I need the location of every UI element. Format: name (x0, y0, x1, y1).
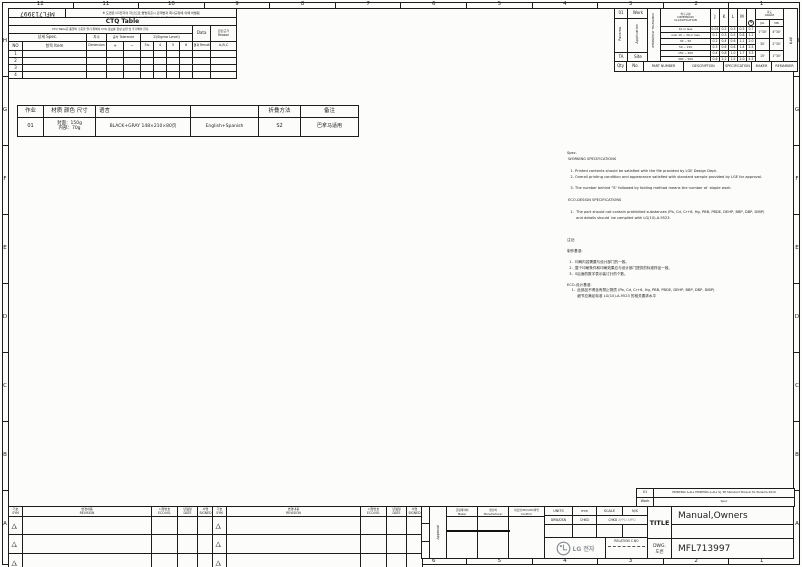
chinese-notes: 注记:制作基准: 1. 印刷内容需要与设计部门的一致。 2. 整个印刷条件和印刷… (567, 238, 799, 300)
revision-triangle-icon: △2 (216, 542, 224, 549)
drw-dsn-label: DRW/DSN (545, 516, 573, 524)
spec-material: 封面：150g 内部：70g (44, 118, 96, 137)
title-empty-row (672, 525, 793, 539)
circled-n-header: N (747, 9, 756, 27)
revision-symbol-cell: △2 (9, 535, 23, 553)
approval-label: Approval (436, 525, 440, 540)
revision-symbol-cell: △1 (9, 517, 23, 535)
dwg-number: MFL713997 (672, 539, 793, 558)
ruler-number: 4 (533, 559, 599, 565)
print-spec-table: 作业 材质 颜色 尺寸 语言 折叠方法 备注 01 封面：150g 内部：70g… (17, 105, 359, 137)
manufacturer-header: 생산처 Manufacturer (478, 507, 509, 516)
spec-remark: 巴拿马适用 (301, 118, 359, 137)
rev-work: Work (637, 498, 654, 507)
chkd-label: CHKD (573, 516, 597, 524)
angle-header: 각도 ANGLE (756, 9, 784, 20)
units-scale-block: UNITS mm SCALE N/S DRW/DSN CHKD CHKD APP… (544, 506, 648, 559)
revision-table-2: 기호 SYM 변경내용 REVISION 시행번호 ECO.NO. 년월일 DA… (212, 506, 423, 567)
approval-strip: Approval (421, 506, 447, 559)
title-label: TITLE (648, 507, 671, 539)
spec-language: English+Spanish (191, 118, 259, 137)
revision-summary-row: 01 PRINTING A-ALL PRINTING A-ALL SJ, SE … (636, 488, 795, 507)
revision-table-1: 기호 SYM 변경내용 REVISION 시행번호 ECO.NO. 년월일 DA… (8, 506, 214, 567)
rotated-drawing-number: MFL713997 (9, 9, 66, 17)
spec-folding: S2 (259, 118, 301, 137)
revision-symbol-cell: △3 (9, 553, 23, 567)
confirm-header: 자료실(3D)(2D)확인 Confirm (509, 507, 544, 516)
rev-spec: Spec (654, 498, 795, 507)
ruler-letter: G (794, 77, 800, 146)
note-line: 细节应满足标准 LG(10)-A-9523 的相关要求水平 (567, 294, 799, 300)
approval-sub-cells (422, 507, 430, 558)
chkd-appd-labels: CHKD APPD APPD (597, 516, 647, 524)
revision-symbol-cell: △2 (213, 535, 227, 553)
scale-label: SCALE (597, 507, 623, 515)
grade-header: 등급 (784, 9, 798, 69)
revision-triangle-icon: △3 (216, 561, 224, 567)
rev-desc: PRINTING A-ALL PRINTING A-ALL SJ, SE Sta… (654, 489, 795, 498)
revision-triangle-icon: △2 (12, 542, 20, 549)
spec-no: 01 (18, 118, 44, 137)
units-label: UNITS (545, 507, 573, 515)
title-value-column: Manual,Owners MFL713997 (671, 506, 794, 559)
ruler-number: 5 (467, 559, 533, 565)
ruler-number: 2 (664, 559, 730, 565)
ctq-data-header: Data (193, 26, 211, 42)
revision-triangle-icon: △1 (216, 524, 224, 531)
revision-triangle-icon: △3 (12, 561, 20, 567)
lg-logo-icon (556, 541, 571, 556)
signature-row (545, 525, 647, 538)
working-specifications-notes: Spec. WORKING SPECIFICATIONS 1. Printed … (567, 151, 799, 222)
dimension-classification-header: 치수구분 DIMENSION CLASSIFICATION (661, 9, 711, 27)
ctq-reason-header: 판단근거 Reason (211, 26, 237, 42)
drawing-sheet: 121110987654321 121110987654321 HGFEDCBA… (0, 0, 802, 567)
lg-logo: LG 전자 (545, 538, 605, 558)
title-value: Manual,Owners (672, 507, 793, 525)
maker-block: 금형제작처 Maker 생산처 Manufacturer 자료실(3D)(2D)… (446, 506, 545, 559)
ruler-letter: B (794, 422, 800, 491)
lg-logo-text: LG 전자 (573, 544, 595, 553)
ctq-note: CTQ Table은 품질의 수준을 알기 위해서 CTQ 정보를 항상 보완 … (9, 26, 193, 34)
parts-header-row: Qty No PART NUMBER DESCRIPTION SPECIFICA… (614, 61, 798, 72)
revision-symbol-cell: △1 (213, 517, 227, 535)
units-value: mm (573, 507, 597, 515)
rev-no: 01 (637, 489, 654, 498)
vertical-panama-label: Panama (619, 27, 623, 41)
scale-value: N/S (623, 507, 647, 515)
note-line: and details should be complied with LG(1… (567, 216, 799, 222)
work-application-table: 01 Work Panama Application TA Site (614, 8, 649, 63)
vertical-application-label: Application (636, 24, 640, 44)
confidentiality-notice: ※ 도면은 LG전자의 자산으로 불법유출시 관계법과 회사규정에 의해 처벌됨… (66, 9, 236, 17)
ctq-table: CTQ Table은 품질의 수준을 알기 위해서 CTQ 정보를 항상 보완 … (8, 25, 237, 79)
spec-color-size: BLACK+GRAY 148×210×80页 (96, 118, 191, 137)
relation-cno-box: RELATION C.NO (605, 538, 647, 558)
ruler-number: 1 (729, 559, 794, 565)
ruler-number: 3 (598, 559, 664, 565)
tolerance-side-label: 일반공차수치 TOLERANCE ±mm (648, 9, 661, 69)
ruler-letter: C (794, 353, 800, 422)
dwg-label: DWG. 도번 (648, 539, 671, 559)
revision-triangle-icon: △1 (12, 524, 20, 531)
revision-symbol-cell: △3 (213, 553, 227, 567)
signature-line (447, 530, 510, 532)
maker-header: 금형제작처 Maker (447, 507, 478, 516)
title-label-column: TITLE DWG. 도번 (647, 506, 672, 559)
